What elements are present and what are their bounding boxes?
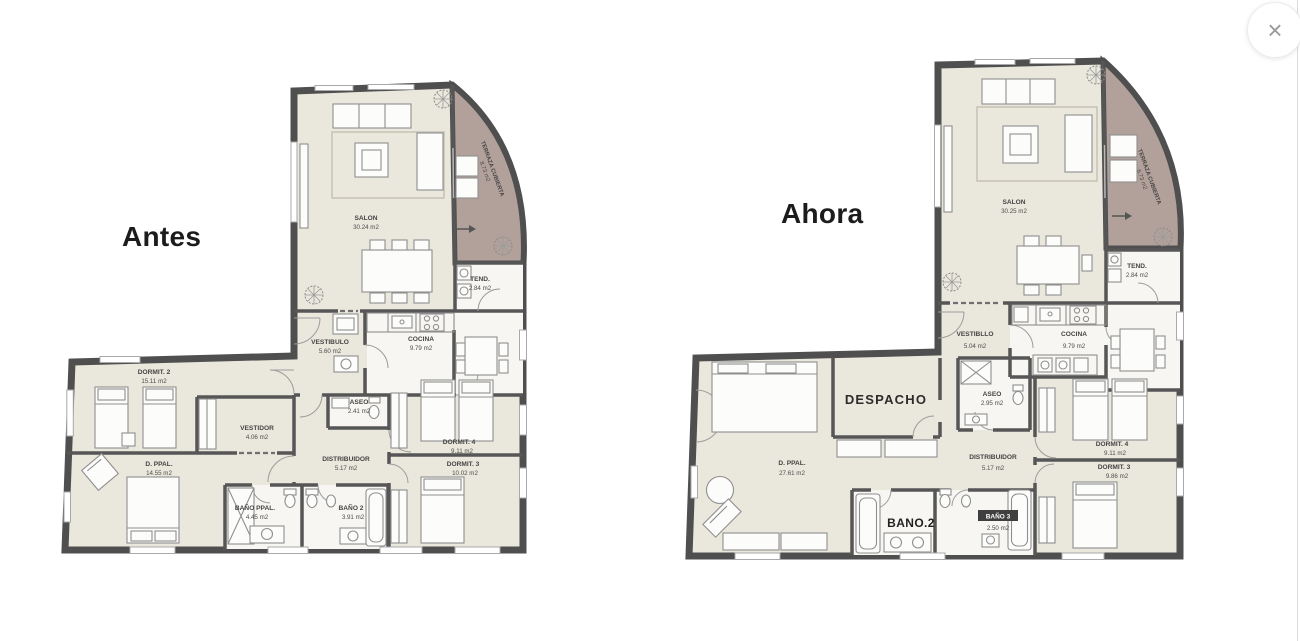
room-label-aseo: ASEO [350,399,369,406]
room-label-dppal: D. PPAL. [145,461,173,468]
chaise [1065,115,1092,172]
room-label-cocina: COCINA [1061,331,1087,338]
room-area-distribuidor: 5.17 m2 [335,465,358,472]
close-button[interactable]: × [1247,2,1300,58]
room-area-bano-ppal: 4.45 m2 [246,514,269,521]
room-label-salon: SALON [1002,199,1025,206]
tv-unit [944,126,952,212]
coffee-table [1003,126,1038,163]
room-area-tend: 2.84 m2 [1126,272,1149,279]
plant-icon [1087,66,1105,84]
room-area-bano3: 2.50 m2 [987,525,1010,532]
room-label-bano3: BAÑO 3 [986,512,1011,521]
plant-icon [494,237,512,255]
room-label-distribuidor: DISTRIBUIDOR [969,454,1017,461]
hall-console [333,314,358,334]
bedroom4-furniture [1039,379,1147,440]
sofa [982,79,1055,104]
lowboards [723,533,827,550]
plant-icon [434,90,452,108]
room-area-dppal: 27.61 m2 [779,470,805,477]
chaise [417,133,443,190]
room-label-vestibulo: VESTIBULO [311,339,349,346]
plant-icon [943,273,961,291]
breakfast-table [456,337,508,375]
room-area-dppal: 14.55 m2 [146,470,172,477]
room-area-vestibulo: 5.60 m2 [319,348,342,355]
dining-table [362,240,432,303]
room-label-dormit3: DORMIT. 3 [1098,464,1131,471]
room-area-bano2: 3.91 m2 [342,514,365,521]
room-area-dormit4: 9.11 m2 [1104,450,1126,457]
room-label-bano-ppal: BAÑO PPAL. [235,503,275,512]
room-area-dormit2: 15.11 m2 [141,378,167,385]
room-area-dormit4: 9.11 m2 [451,448,473,455]
room-area-dormit3: 10.02 m2 [452,470,478,477]
vestidor-wardrobe [199,399,216,449]
room-label-tend: TEND. [470,276,490,283]
room-label-bano2: BAÑO 2 [339,503,364,512]
room-label-vestibulo: VESTIBLLO [957,331,994,338]
room-area-distribuidor: 5.17 m2 [982,465,1005,472]
floor-plan-ahora: SALON 30.25 m2 TERRAZA CUBIERTA 6.73 m2 … [689,59,1184,560]
room-area-cocina: 9.79 m2 [410,345,433,352]
master-bed [712,362,817,432]
room-area-aseo: 2.41 m2 [348,408,371,415]
sofa [333,104,411,128]
room-label-distribuidor: DISTRIBUIDOR [322,456,370,463]
room-label-tend: TEND. [1127,263,1147,270]
despacho-sideboard [837,440,937,457]
room-area-vestidor: 4.06 m2 [246,434,269,441]
room-label-aseo: ASEO [983,391,1002,398]
master-bed [127,477,179,543]
room-area-cocina: 9.79 m2 [1063,343,1086,350]
room-area-tend: 2.84 m2 [469,285,492,292]
coffee-table [355,143,388,177]
room-area-dormit3: 9.86 m2 [1106,473,1129,480]
room-label-bano2: BANO.2 [887,516,935,530]
room-label-cocina: COCINA [408,336,434,343]
room-area-vestibulo: 5.04 m2 [964,343,987,350]
floor-plans-canvas: SALON 30.24 m2 TERRAZA CUBIERTA 8.73 m2 … [0,0,1300,641]
floor-plan-antes: SALON 30.24 m2 TERRAZA CUBIERTA 8.73 m2 … [64,85,527,554]
room-label-dormit3: DORMIT. 3 [447,461,480,468]
room-label-vestidor: VESTIDOR [240,425,274,432]
plant-icon [305,286,323,304]
room-label-dormit2: DORMIT. 2 [138,369,171,376]
room-label-salon: SALON [354,215,377,222]
plant-icon [1154,228,1172,246]
room-label-dormit4: DORMIT. 4 [1096,441,1129,448]
room-label-despacho: DESPACHO [845,392,927,407]
tv-unit [300,144,308,228]
room-area-salon: 30.25 m2 [1001,208,1027,215]
close-icon: × [1267,17,1282,43]
room-area-salon: 30.24 m2 [353,224,379,231]
room-area-aseo: 2.95 m2 [981,400,1004,407]
laundry-column [334,356,358,372]
room-label-dormit4: DORMIT. 4 [443,439,476,446]
room-label-dppal: D. PPAL. [778,460,806,467]
